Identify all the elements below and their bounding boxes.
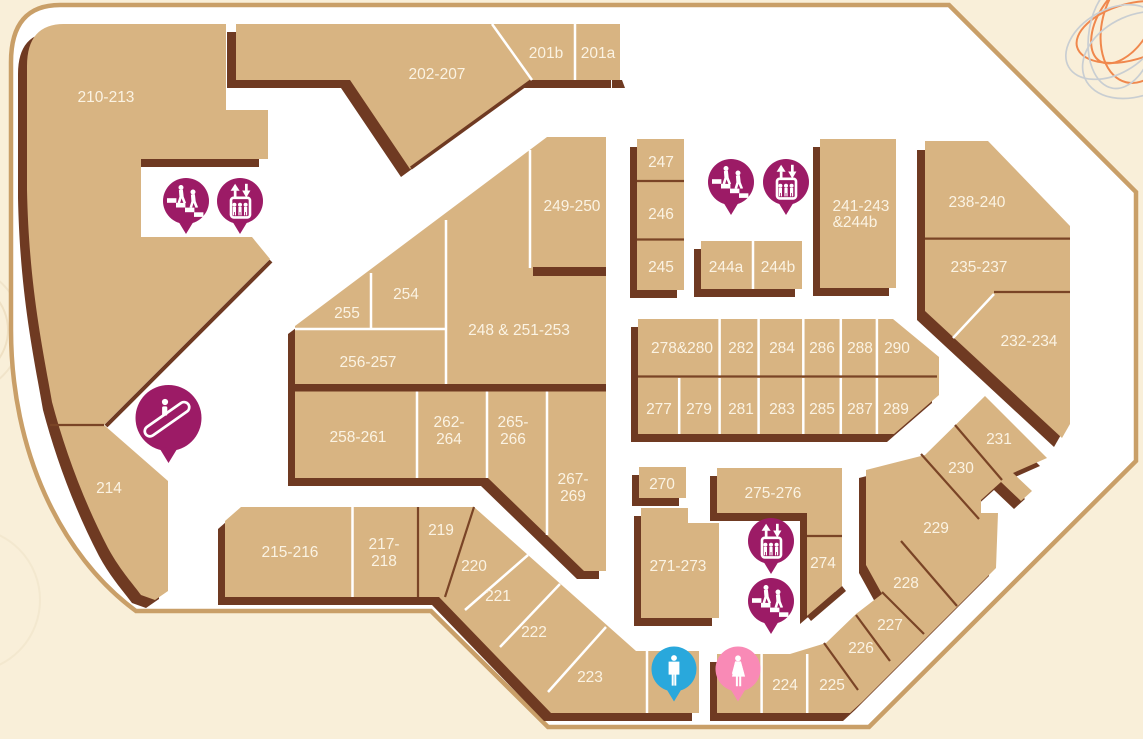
svg-text:218: 218 xyxy=(371,553,397,570)
svg-text:264: 264 xyxy=(436,431,462,448)
svg-text:289: 289 xyxy=(883,401,909,418)
svg-text:271-273: 271-273 xyxy=(650,558,707,575)
svg-text:235-237: 235-237 xyxy=(951,259,1008,276)
svg-text:262-: 262- xyxy=(433,414,464,431)
svg-text:224: 224 xyxy=(772,677,798,694)
svg-text:201b: 201b xyxy=(529,45,563,62)
svg-text:225: 225 xyxy=(819,677,845,694)
svg-text:228: 228 xyxy=(893,575,919,592)
svg-text:215-216: 215-216 xyxy=(262,544,319,561)
svg-text:246: 246 xyxy=(648,206,674,223)
svg-text:202-207: 202-207 xyxy=(409,66,466,83)
svg-text:245: 245 xyxy=(648,259,674,276)
svg-text:247: 247 xyxy=(648,154,674,171)
svg-text:278&280: 278&280 xyxy=(651,340,713,357)
svg-text:219: 219 xyxy=(428,522,454,539)
svg-text:223: 223 xyxy=(577,669,603,686)
svg-text:277: 277 xyxy=(646,401,672,418)
svg-text:222: 222 xyxy=(521,624,547,641)
svg-text:265-: 265- xyxy=(497,414,528,431)
svg-text:244b: 244b xyxy=(761,259,795,276)
svg-text:232-234: 232-234 xyxy=(1001,333,1058,350)
svg-text:254: 254 xyxy=(393,286,419,303)
svg-text:275-276: 275-276 xyxy=(745,485,802,502)
svg-text:283: 283 xyxy=(769,401,795,418)
svg-text:229: 229 xyxy=(923,520,949,537)
svg-text:282: 282 xyxy=(728,340,754,357)
svg-text:230: 230 xyxy=(948,460,974,477)
svg-text:231: 231 xyxy=(986,431,1012,448)
svg-text:241-243: 241-243 xyxy=(833,198,890,215)
svg-text:287: 287 xyxy=(847,401,873,418)
svg-text:244a: 244a xyxy=(709,259,744,276)
svg-text:249-250: 249-250 xyxy=(544,198,601,215)
svg-text:258-261: 258-261 xyxy=(330,429,387,446)
svg-text:226: 226 xyxy=(848,640,874,657)
svg-text:285: 285 xyxy=(809,401,835,418)
svg-text:210-213: 210-213 xyxy=(78,89,135,106)
svg-text:279: 279 xyxy=(686,401,712,418)
svg-text:217-: 217- xyxy=(368,536,399,553)
svg-text:284: 284 xyxy=(769,340,795,357)
svg-text:290: 290 xyxy=(884,340,910,357)
svg-text:220: 220 xyxy=(461,558,487,575)
svg-text:227: 227 xyxy=(877,617,903,634)
svg-text:270: 270 xyxy=(649,476,675,493)
svg-text:267-: 267- xyxy=(557,471,588,488)
svg-text:269: 269 xyxy=(560,488,586,505)
svg-text:221: 221 xyxy=(485,588,511,605)
svg-text:281: 281 xyxy=(728,401,754,418)
svg-text:288: 288 xyxy=(847,340,873,357)
svg-text:286: 286 xyxy=(809,340,835,357)
svg-text:274: 274 xyxy=(810,555,836,572)
svg-text:266: 266 xyxy=(500,431,526,448)
svg-text:&244b: &244b xyxy=(833,214,878,231)
svg-text:255: 255 xyxy=(334,305,360,322)
svg-text:256-257: 256-257 xyxy=(340,354,397,371)
svg-text:248 & 251-253: 248 & 251-253 xyxy=(468,322,570,339)
svg-text:214: 214 xyxy=(96,480,122,497)
svg-text:238-240: 238-240 xyxy=(949,194,1006,211)
svg-text:201a: 201a xyxy=(581,45,616,62)
